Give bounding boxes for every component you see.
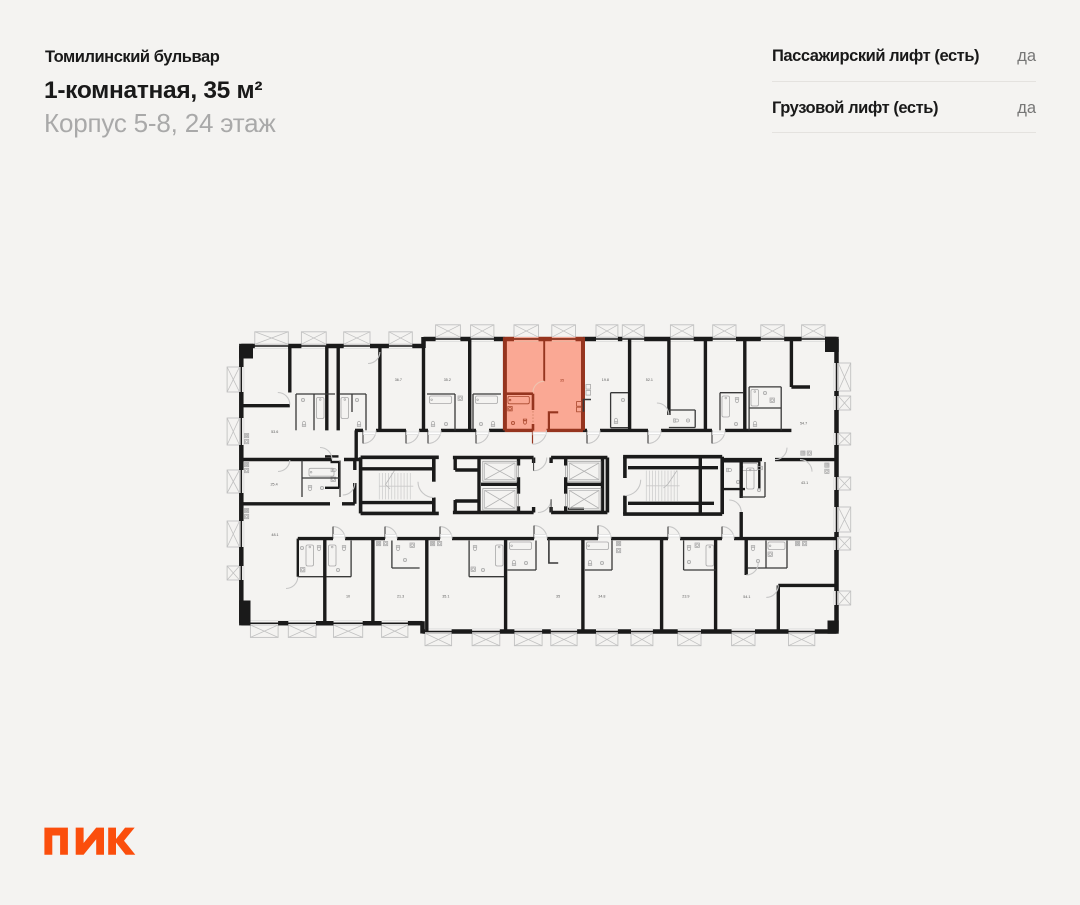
svg-text:19.8: 19.8 [602,378,609,382]
svg-text:25.4: 25.4 [271,482,278,486]
svg-text:54.1: 54.1 [743,595,750,599]
svg-text:36.7: 36.7 [395,378,402,382]
svg-text:23.9: 23.9 [682,595,689,599]
svg-text:35.2: 35.2 [444,378,451,382]
svg-text:21.3: 21.3 [397,595,404,599]
svg-text:35: 35 [556,595,560,599]
svg-text:43.1: 43.1 [801,481,808,485]
svg-text:52.1: 52.1 [646,378,653,382]
svg-text:35: 35 [560,378,564,383]
svg-text:35.1: 35.1 [442,595,449,599]
svg-text:54.7: 54.7 [800,421,807,425]
svg-text:48.1: 48.1 [271,533,278,537]
svg-text:10: 10 [346,595,350,599]
svg-text:53.6: 53.6 [271,430,278,434]
svg-text:34.8: 34.8 [598,595,605,599]
